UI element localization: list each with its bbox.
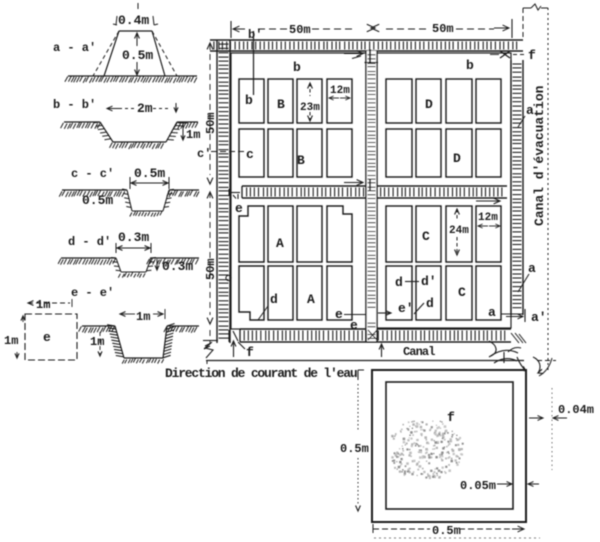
svg-text:2m: 2m (137, 101, 153, 116)
svg-text:1m: 1m (4, 334, 18, 348)
svg-text:0.3m: 0.3m (162, 259, 193, 274)
svg-text:Canal d'évacuation: Canal d'évacuation (532, 85, 547, 226)
svg-text:0.5m: 0.5m (134, 166, 165, 181)
svg-text:1m: 1m (186, 128, 200, 142)
svg-text:c': c' (197, 147, 211, 161)
svg-text:0.05m: 0.05m (460, 479, 496, 493)
svg-text:b - b': b - b' (53, 98, 96, 112)
svg-text:Direction de courant de l'eau: Direction de courant de l'eau (165, 366, 357, 381)
svg-text:c - c': c - c' (71, 167, 114, 181)
svg-text:0.5m: 0.5m (82, 193, 113, 208)
svg-text:50m: 50m (432, 22, 454, 36)
svg-text:0.5m: 0.5m (432, 524, 461, 538)
svg-text:1m: 1m (90, 335, 104, 349)
svg-text:f: f (246, 345, 254, 360)
svg-text:d: d (426, 296, 434, 311)
svg-text:A: A (307, 292, 315, 307)
svg-text:0.3m: 0.3m (118, 230, 149, 245)
svg-text:1m: 1m (136, 310, 150, 324)
svg-text:a: a (528, 261, 536, 276)
svg-text:0.4m: 0.4m (118, 13, 149, 28)
svg-text:e: e (235, 201, 243, 216)
svg-text:c: c (246, 147, 254, 162)
svg-text:e: e (350, 318, 358, 333)
svg-text:b: b (293, 60, 301, 75)
svg-text:50m: 50m (289, 23, 311, 37)
svg-text:e: e (43, 330, 51, 345)
svg-text:D: D (425, 97, 433, 112)
svg-text:B: B (277, 97, 285, 112)
svg-text:e - e': e - e' (71, 286, 114, 300)
svg-text:d': d' (421, 274, 437, 289)
svg-text:C: C (458, 285, 466, 300)
svg-text:0.5m: 0.5m (122, 48, 153, 63)
svg-text:24m: 24m (449, 225, 469, 237)
svg-text:d: d (270, 292, 278, 307)
svg-text:d: d (395, 275, 403, 290)
svg-text:f: f (528, 48, 536, 63)
svg-text:12m: 12m (330, 85, 350, 97)
svg-text:b: b (245, 93, 253, 108)
svg-text:A: A (276, 236, 284, 251)
svg-text:1m: 1m (36, 298, 50, 312)
svg-text:0.5m: 0.5m (340, 442, 369, 456)
svg-text:12m: 12m (478, 212, 498, 224)
svg-text:C: C (422, 229, 430, 244)
svg-text:Canal: Canal (403, 345, 435, 359)
svg-text:d - d': d - d' (68, 235, 111, 249)
svg-text:B: B (297, 153, 305, 168)
svg-text:a: a (488, 305, 496, 320)
svg-text:a': a' (531, 310, 547, 325)
svg-text:D: D (453, 151, 461, 166)
svg-text:f: f (447, 410, 455, 425)
svg-text:e: e (335, 307, 343, 322)
svg-text:a - a': a - a' (53, 41, 96, 55)
svg-text:50m: 50m (204, 258, 218, 280)
svg-text:50m: 50m (204, 112, 218, 134)
svg-text:0.04m: 0.04m (558, 403, 594, 417)
svg-text:b: b (466, 58, 474, 73)
svg-text:e': e' (398, 301, 414, 316)
